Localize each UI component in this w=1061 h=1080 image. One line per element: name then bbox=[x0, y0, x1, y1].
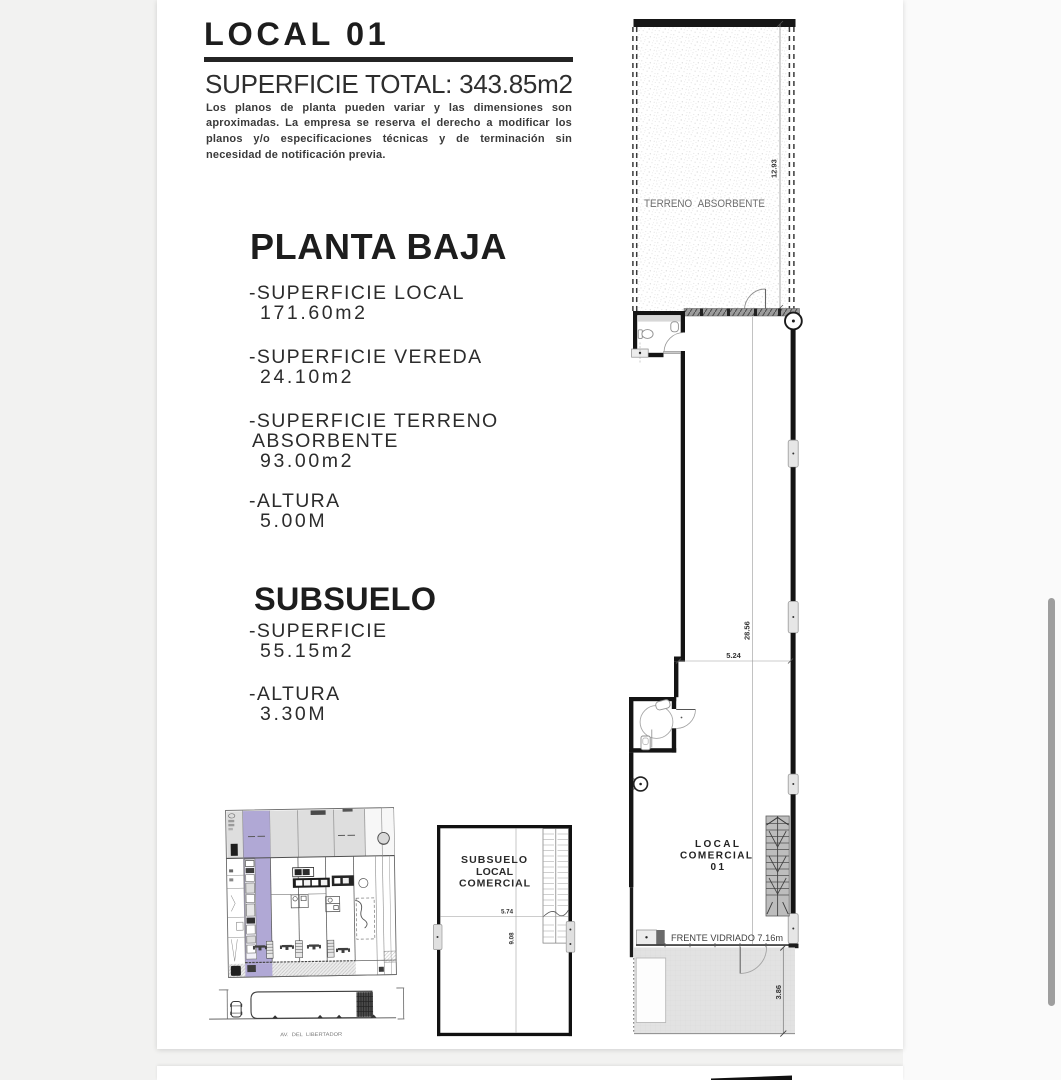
svg-text:COMERCIAL: COMERCIAL bbox=[680, 851, 752, 862]
svg-text:COMERCIAL: COMERCIAL bbox=[459, 877, 531, 889]
svg-text:5.74: 5.74 bbox=[501, 909, 514, 916]
svg-text:3.86: 3.86 bbox=[774, 985, 783, 1000]
svg-text:9.08: 9.08 bbox=[509, 932, 516, 945]
svg-text:AV. DEL LIBERTADOR: AV. DEL LIBERTADOR bbox=[280, 1032, 342, 1038]
svg-text:12.93: 12.93 bbox=[770, 159, 779, 178]
svg-text:01: 01 bbox=[711, 862, 725, 873]
svg-text:LOCAL: LOCAL bbox=[476, 866, 514, 878]
svg-text:SUBSUELO: SUBSUELO bbox=[461, 854, 527, 866]
svg-text:LOCAL: LOCAL bbox=[695, 839, 739, 850]
svg-text:28.56: 28.56 bbox=[743, 621, 752, 640]
svg-text:TERRENO ABSORBENTE: TERRENO ABSORBENTE bbox=[644, 198, 765, 210]
svg-text:5.24: 5.24 bbox=[726, 651, 741, 660]
svg-text:FRENTE VIDRIADO 7.16m: FRENTE VIDRIADO 7.16m bbox=[671, 933, 783, 944]
